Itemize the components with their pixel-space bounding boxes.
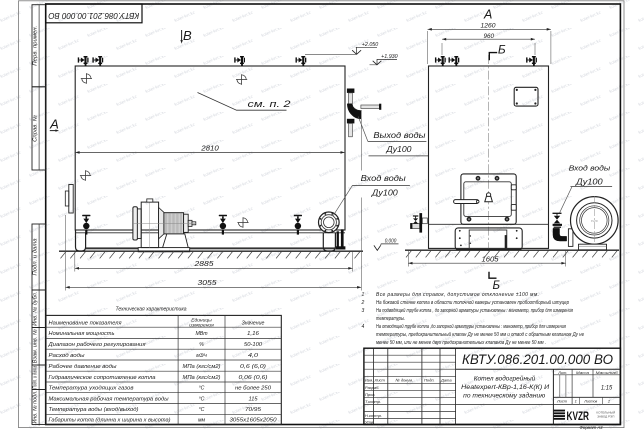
- svg-text:МПа (кгс/см2): МПа (кгс/см2): [183, 375, 221, 381]
- svg-text:измерения: измерения: [189, 324, 214, 329]
- svg-text:Выход воды: Выход воды: [373, 131, 425, 140]
- svg-text:Наименование показателя: Наименование показателя: [49, 320, 122, 326]
- svg-text:Вход воды: Вход воды: [569, 164, 611, 173]
- svg-text:менее 50 мм, или не менее двух: менее 50 мм, или не менее двух предохран…: [376, 340, 546, 346]
- svg-text:КВТУ.086.201.00.000 ВО: КВТУ.086.201.00.000 ВО: [462, 352, 613, 367]
- svg-text:Вход воды: Вход воды: [361, 174, 406, 183]
- svg-text:1: 1: [575, 399, 577, 404]
- svg-text:Максимальная рабочая температу: Максимальная рабочая температура воды: [49, 396, 169, 402]
- svg-text:Heatexpert-КВр-1,16-К(К) И: Heatexpert-КВр-1,16-К(К) И: [461, 384, 549, 391]
- svg-text:Лист: Лист: [556, 399, 568, 404]
- svg-text:Котел водогрейный: Котел водогрейный: [474, 374, 536, 382]
- svg-text:%: %: [199, 342, 204, 348]
- svg-text:°С: °С: [199, 407, 205, 413]
- svg-text:КВТУ.086.201.00.000 ВО: КВТУ.086.201.00.000 ВО: [48, 11, 139, 21]
- svg-text:МПа (кгс/см2): МПа (кгс/см2): [183, 364, 221, 370]
- svg-text:Лист: Лист: [374, 378, 386, 383]
- svg-text:0,6 (6,0): 0,6 (6,0): [240, 364, 266, 370]
- svg-text:Взам. инв. №: Взам. инв. №: [32, 329, 38, 363]
- svg-text:В: В: [183, 28, 192, 43]
- svg-text:Инв. № дубл.: Инв. № дубл.: [32, 292, 38, 326]
- svg-text:Разраб.: Разраб.: [365, 385, 379, 390]
- svg-text:Инв. № подл.: Инв. № подл.: [32, 391, 38, 424]
- svg-text:см. п. 2: см. п. 2: [248, 99, 292, 110]
- svg-text:Листов: Листов: [583, 399, 597, 404]
- svg-text:Изм.: Изм.: [365, 378, 374, 383]
- svg-text:1,16: 1,16: [247, 331, 259, 337]
- svg-text:не более 250: не более 250: [235, 386, 271, 392]
- svg-text:Техническая характеристика: Техническая характеристика: [116, 307, 187, 313]
- svg-text:Значение: Значение: [242, 320, 265, 326]
- svg-text:°С: °С: [199, 386, 205, 392]
- svg-text:960: 960: [484, 33, 495, 40]
- svg-text:Б: Б: [498, 42, 506, 56]
- svg-text:№ докум.: № докум.: [396, 378, 414, 383]
- svg-text:МВт: МВт: [195, 331, 208, 337]
- svg-text:м3/ч: м3/ч: [196, 353, 207, 359]
- svg-text:Справ. №: Справ. №: [32, 114, 38, 141]
- svg-text:Гидравлическое сопротивление к: Гидравлическое сопротивление котла: [49, 375, 156, 381]
- svg-text:3: 3: [362, 308, 365, 314]
- svg-text:А: А: [49, 117, 59, 132]
- svg-text:1260: 1260: [481, 23, 496, 30]
- svg-text:1: 1: [362, 292, 365, 298]
- svg-text:Ду100: Ду100: [385, 145, 412, 154]
- svg-text:температуры, предохранительный: температуры, предохранительный клапан Ду…: [376, 331, 584, 338]
- svg-text:Подп.: Подп.: [424, 378, 435, 383]
- svg-text:Рабочее давление воды: Рабочее давление воды: [49, 364, 117, 370]
- svg-text:Температура воды (вход/выход): Температура воды (вход/выход): [49, 407, 139, 413]
- svg-text:Диапазон рабочего регулировани: Диапазон рабочего регулирования: [47, 342, 145, 348]
- svg-text:50-100: 50-100: [244, 342, 262, 348]
- svg-text:+1.930: +1.930: [381, 54, 398, 60]
- svg-text:4,0: 4,0: [248, 353, 258, 359]
- svg-text:А: А: [483, 8, 492, 22]
- svg-text:+2.050: +2.050: [362, 42, 379, 48]
- svg-text:Ду100: Ду100: [371, 189, 398, 198]
- svg-text:1:15: 1:15: [601, 385, 613, 392]
- svg-text:2885: 2885: [193, 259, 214, 268]
- svg-text:На отводящей трубе котла ,до з: На отводящей трубе котла ,до запорной ар…: [376, 323, 566, 330]
- svg-text:Температура уходящих газов: Температура уходящих газов: [49, 386, 134, 392]
- svg-text:Габариты котла (длинна х ширин: Габариты котла (длинна х ширина х высота…: [49, 417, 171, 423]
- svg-text:ЗАВОД РЭП: ЗАВОД РЭП: [597, 415, 614, 419]
- svg-text:Дата: Дата: [440, 378, 452, 383]
- svg-text:3055х1605х2050: 3055х1605х2050: [230, 417, 277, 423]
- svg-text:70/95: 70/95: [245, 407, 261, 413]
- svg-text:Масштаб: Масштаб: [596, 370, 619, 375]
- svg-text:температуры.: температуры.: [376, 316, 405, 322]
- svg-text:Б: Б: [492, 280, 500, 292]
- svg-text:°С: °С: [199, 396, 205, 402]
- svg-text:Перв. примен.: Перв. примен.: [32, 26, 38, 66]
- svg-text:0,06 (0,6): 0,06 (0,6): [239, 375, 268, 381]
- svg-text:Подп. и дата: Подп. и дата: [32, 238, 38, 275]
- svg-text:KVZR: KVZR: [567, 411, 590, 423]
- svg-text:Лит.: Лит.: [557, 370, 567, 375]
- svg-text:3055: 3055: [198, 278, 218, 287]
- svg-text:На боковой стенке котла в обла: На боковой стенке котла в области топочн…: [376, 299, 569, 306]
- svg-text:Расход воды: Расход воды: [49, 353, 85, 359]
- svg-text:Масса: Масса: [576, 370, 590, 375]
- svg-text:по техническому заданию: по техническому заданию: [463, 392, 545, 400]
- svg-text:Ду100: Ду100: [575, 177, 603, 186]
- svg-text:Формат А3: Формат А3: [580, 425, 604, 430]
- svg-text:мм: мм: [198, 417, 206, 423]
- svg-text:Номинальная мощность: Номинальная мощность: [49, 331, 115, 337]
- svg-text:Утв.: Утв.: [365, 419, 374, 424]
- svg-text:2810: 2810: [200, 144, 219, 153]
- svg-text:Единицы: Единицы: [191, 317, 212, 323]
- svg-text:4: 4: [362, 324, 365, 330]
- svg-text:Н.контр.: Н.контр.: [365, 413, 382, 418]
- svg-text:Т.контр.: Т.контр.: [365, 399, 381, 404]
- svg-text:2: 2: [361, 300, 365, 306]
- svg-text:На подводящей трубе котла ,: На подводящей трубе котла , до запорной …: [376, 307, 573, 314]
- svg-text:Подп. и дата: Подп. и дата: [32, 366, 38, 389]
- svg-text:115: 115: [249, 396, 258, 402]
- svg-text:1605: 1605: [482, 256, 499, 263]
- svg-text:Все размеры для справок, допус: Все размеры для справок, допустимое откл…: [376, 292, 539, 298]
- svg-text:Пров.: Пров.: [365, 392, 376, 397]
